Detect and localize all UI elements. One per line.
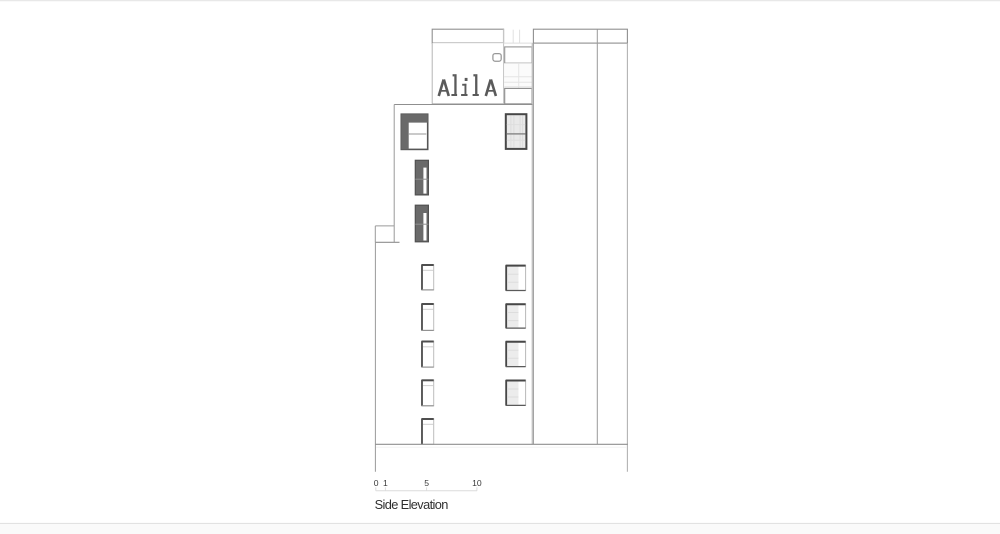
svg-text:0: 0 bbox=[374, 478, 379, 488]
svg-text:Side Elevation: Side Elevation bbox=[375, 497, 449, 512]
svg-text:10: 10 bbox=[472, 478, 482, 488]
svg-text:5: 5 bbox=[424, 478, 429, 488]
svg-text:1: 1 bbox=[383, 478, 388, 488]
